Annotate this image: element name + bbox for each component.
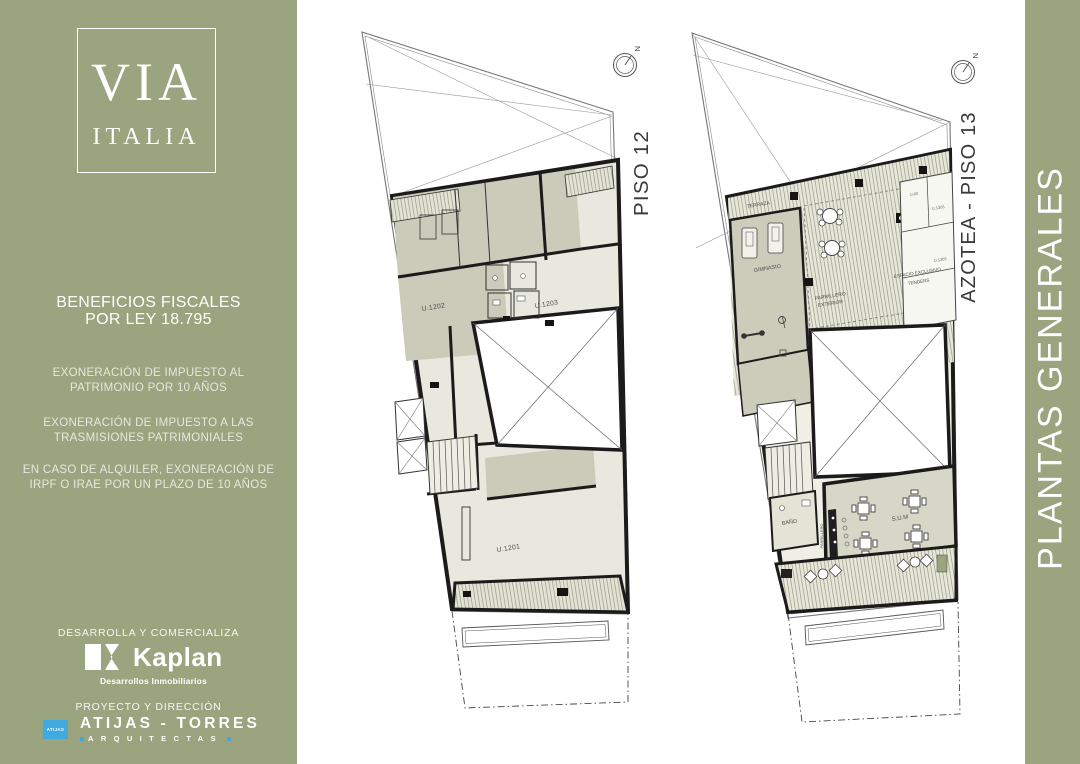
kaplan-tagline: Desarrollos Inmobiliarios — [77, 676, 207, 686]
floorplan-azotea-piso-13: TERRAZA GIMNASIO PARRILLERO EXTERIOR ESP… — [672, 20, 1002, 742]
burner — [832, 517, 835, 520]
kaplan-logo: Kaplan — [85, 643, 223, 671]
via-italia-logo: VIA ITALIA — [77, 28, 216, 173]
planter — [462, 621, 609, 647]
benefits-title-line2: POR LEY 18.795 — [0, 311, 297, 328]
north-arrow-icon: N — [614, 46, 643, 77]
developer-heading: DESARROLLA Y COMERCIALIZA — [0, 627, 297, 639]
construction-line — [366, 36, 618, 159]
planter-inner — [465, 625, 606, 644]
burner — [834, 541, 837, 544]
fixture — [780, 506, 785, 511]
plan2-caption: AZOTEA - PISO 13 — [958, 111, 980, 302]
architect-tagline: ARQUITECTAS — [80, 734, 231, 743]
construction-line — [693, 55, 942, 121]
logo-line-via: VIA — [78, 53, 215, 111]
kaplan-name: Kaplan — [133, 642, 223, 673]
architect-tagline-text: ARQUITECTAS — [88, 734, 223, 743]
atijas-badge-icon: ATIJAS — [43, 720, 68, 739]
floorplan-piso-12: U.1202 U.1203 U.1201 N PISO 12 — [335, 20, 655, 732]
brochure-page: VIA ITALIA BENEFICIOS FISCALES POR LEY 1… — [0, 0, 1080, 764]
benefits-title: BENEFICIOS FISCALES POR LEY 18.795 — [0, 294, 297, 328]
lower-floor-projection — [452, 611, 628, 708]
architect-heading: PROYECTO Y DIRECCIÓN — [0, 701, 297, 713]
burner — [833, 529, 836, 532]
green-planter — [937, 555, 947, 572]
plantas-generales-title: PLANTAS GENERALES — [1032, 166, 1071, 570]
deck-planter — [781, 569, 792, 578]
fixture — [802, 500, 810, 506]
accent-square-icon — [80, 737, 84, 741]
label-parrillero: PARRILLERO — [819, 523, 824, 548]
plan1-caption: PISO 12 — [630, 130, 653, 216]
left-panel: VIA ITALIA BENEFICIOS FISCALES POR LEY 1… — [0, 0, 297, 764]
kaplan-mark-icon — [85, 643, 125, 671]
logo-line-italia: ITALIA — [78, 125, 215, 149]
north-arrow-icon: N — [952, 53, 981, 84]
fixture — [493, 276, 498, 281]
north-label: N — [633, 46, 642, 51]
fixture — [517, 296, 525, 301]
benefit-trasmisiones: EXONERACIÓN DE IMPUESTO A LAS TRASMISION… — [36, 416, 261, 446]
accent-square-icon — [227, 737, 231, 741]
benefit-patrimonio: EXONERACIÓN DE IMPUESTO AL PATRIMONIO PO… — [36, 366, 261, 396]
architect-name: ATIJAS - TORRES — [80, 715, 260, 733]
benefit-alquiler: EN CASO DE ALQUILER, EXONERACIÓN DE IRPF… — [8, 463, 289, 493]
terrace-deck — [453, 576, 628, 612]
benefits-title-line1: BENEFICIOS FISCALES — [0, 294, 297, 311]
fixture — [493, 300, 500, 305]
lower-floor-projection — [788, 602, 960, 722]
fixture — [521, 274, 526, 279]
north-label: N — [971, 53, 980, 58]
